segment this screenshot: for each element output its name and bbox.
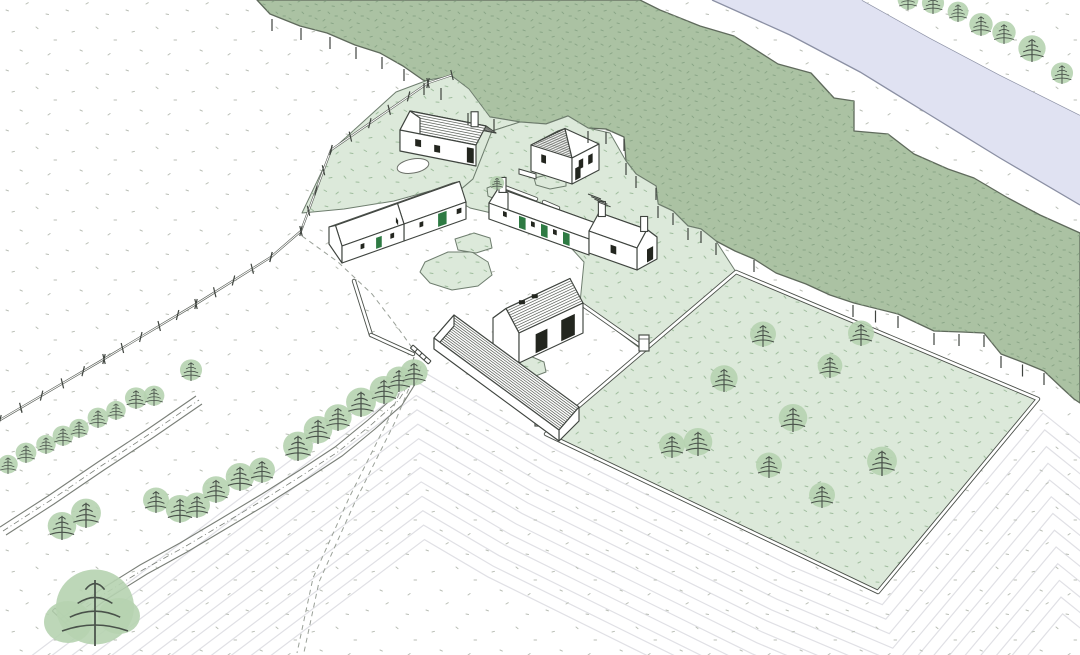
gate-pier <box>639 335 649 351</box>
site-illustration <box>0 0 1080 655</box>
axonometric-site-plan <box>0 0 1080 655</box>
